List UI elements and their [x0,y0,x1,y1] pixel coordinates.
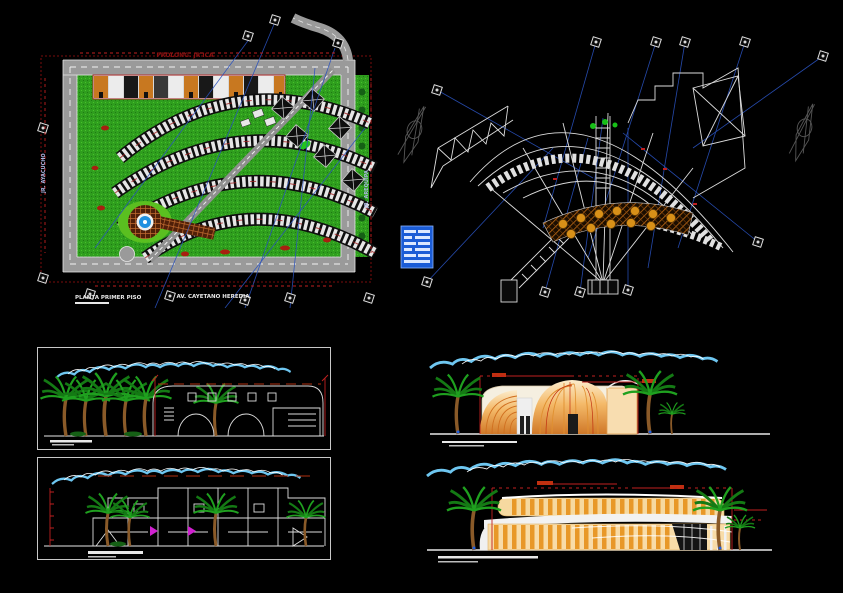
palm-grove [41,373,239,437]
scale-bar [438,556,538,559]
plan-title-underline [75,302,109,304]
street-label-left: JR. AYACUCHO [41,153,47,194]
cloud-sketch [427,460,726,477]
elevation-c-viewport[interactable] [422,348,794,448]
grid-bubbles-plan [422,37,829,298]
cloud-sketch [56,362,291,379]
scale-bar-sub [449,445,484,447]
building-elevation-d [480,495,732,551]
avenue-label: AV. CAYETANO HEREDIA [177,294,251,300]
plan-title-label: PLANTA PRIMER PISO [75,295,142,301]
red-dimensions-a [152,375,328,436]
legend-table [401,226,433,268]
section-b-viewport[interactable] [37,457,331,560]
scale-bar-sub [88,556,116,558]
street-label-right: JR. AREQUIPA [364,170,370,209]
scale-bar [50,440,92,443]
elevation-d-viewport[interactable] [422,458,794,566]
terrace [543,203,693,242]
roundabout [120,247,135,262]
floor-plan-viewport[interactable] [393,28,833,310]
scale-bar [88,551,143,554]
scale-bar [442,441,517,443]
north-arrow-icon [788,101,818,162]
cloud-sketch [430,352,718,369]
section-palms [86,494,326,547]
building-elevation-a [153,386,323,436]
cad-sheet: PROLONG. JR ICA JR. AYACUCHO JR. AREQUIP… [0,0,843,593]
building-elevation-c [480,380,638,434]
scale-bar-sub [438,561,478,563]
street-label-top: PROLONG. JR ICA [156,52,214,59]
elevation-a-viewport[interactable] [37,347,331,450]
plan-plants [590,119,618,129]
magenta-markers [150,526,196,536]
north-arrow-icon [396,103,429,164]
scale-bar-sub [52,444,74,446]
site-plan-viewport[interactable]: PROLONG. JR ICA JR. AYACUCHO JR. AREQUIP… [35,8,380,308]
stepped-wing [628,68,745,198]
